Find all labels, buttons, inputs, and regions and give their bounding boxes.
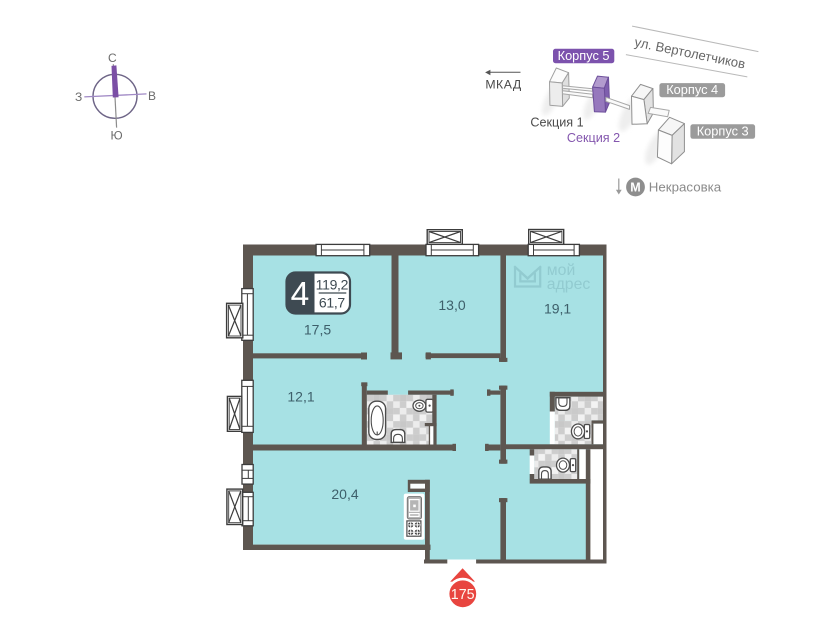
svg-text:З: З [75,90,82,104]
svg-text:Некрасовка: Некрасовка [649,179,722,194]
svg-text:20,4: 20,4 [331,486,358,502]
svg-text:МКАД: МКАД [485,77,522,91]
svg-text:Секция 1: Секция 1 [530,116,583,130]
svg-text:адрес: адрес [547,276,591,293]
svg-text:17,5: 17,5 [304,322,331,338]
svg-text:13,0: 13,0 [438,297,465,313]
svg-text:19,1: 19,1 [544,301,571,317]
svg-text:61,7: 61,7 [319,294,346,310]
svg-text:В: В [148,89,156,103]
svg-text:Секция 2: Секция 2 [567,131,620,145]
svg-text:Ю: Ю [110,129,122,143]
svg-text:М: М [630,181,640,195]
svg-text:119,2: 119,2 [316,277,349,293]
svg-text:Корпус 3: Корпус 3 [697,124,749,139]
svg-text:12,1: 12,1 [287,388,314,404]
svg-text:С: С [108,51,117,65]
svg-text:4: 4 [291,276,310,313]
svg-text:175: 175 [451,587,475,603]
svg-text:Корпус 5: Корпус 5 [558,48,610,63]
svg-text:Корпус 4: Корпус 4 [666,82,718,97]
